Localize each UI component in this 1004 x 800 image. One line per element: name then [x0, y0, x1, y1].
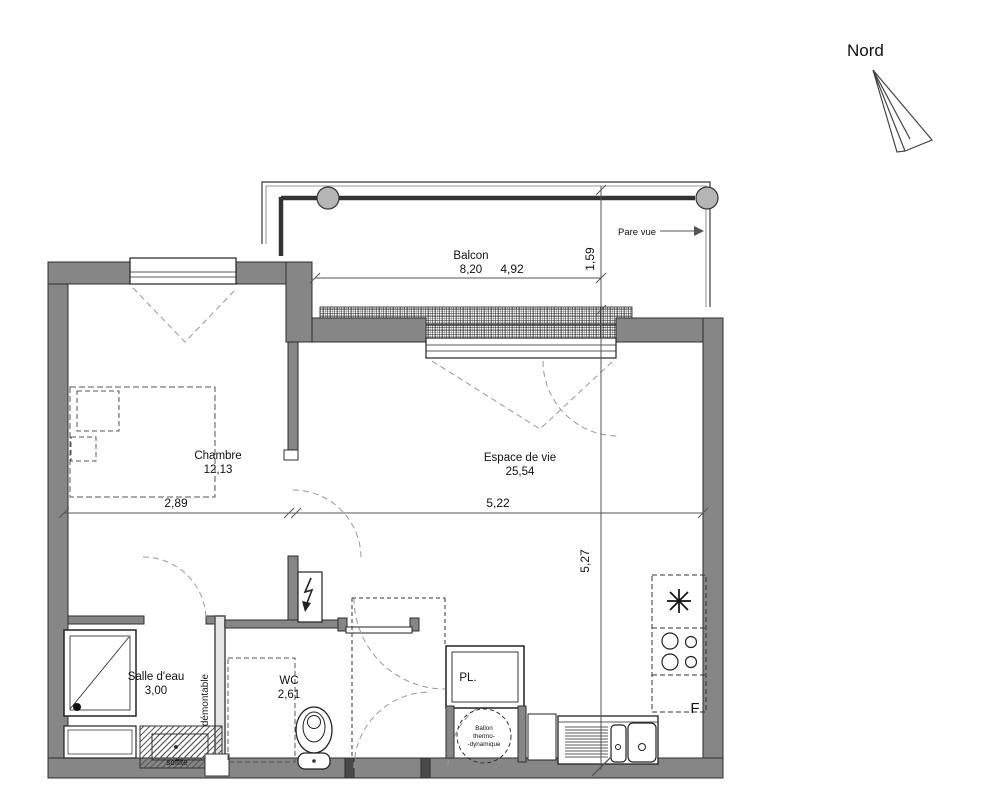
sliding-door-leaf: [346, 627, 412, 633]
wall-chambre-living-lower: [288, 556, 298, 622]
wc-clearance: [228, 658, 295, 762]
entry-door-post: [345, 758, 354, 778]
balcony-label: Balcon: [453, 250, 488, 262]
living-room: Espace de vie 25,54: [484, 452, 556, 478]
wall-wc-top: [225, 620, 340, 628]
wall-salle-deau-top: [68, 616, 144, 624]
dim-living-width: 5,22: [486, 496, 510, 510]
floor-plan: Balcon 8,20 Pare vue: [0, 0, 1004, 800]
balcony-area: 8,20: [460, 264, 482, 276]
living-area: 25,54: [506, 466, 535, 478]
wall-top-living-left: [312, 318, 426, 342]
chambre-area: 12,13: [204, 464, 233, 476]
living-door-swing: [543, 361, 617, 436]
entry-boundary: [352, 598, 445, 758]
cabinet: [528, 714, 556, 760]
wc-label: WC: [279, 675, 298, 687]
dim-chambre-width: 2,89: [164, 496, 188, 510]
balcony-column-icon: [696, 187, 718, 209]
wall-stub: [206, 616, 215, 624]
windows: [130, 258, 617, 436]
wall-cap: [284, 450, 298, 460]
demontable-label: démontable: [200, 673, 211, 726]
pillow-icon: [71, 437, 96, 461]
extractor-asterisk-icon: [667, 589, 691, 613]
cooktop-icon: [662, 633, 697, 670]
chambre-room: Chambre 12,13: [70, 387, 242, 497]
toilet-icon: [296, 707, 332, 753]
storage: PL. Ballon thermo- -dynamique: [446, 646, 556, 763]
ballon-label-1: Ballon: [475, 725, 493, 732]
balcony-column-icon: [317, 187, 339, 209]
sink-basin-icon: [611, 725, 626, 762]
pillow-icon: [77, 391, 119, 431]
pl-label: PL.: [459, 672, 476, 684]
chambre-door-swing: [293, 490, 361, 558]
entry-door-post: [421, 758, 430, 778]
living-window-swing: [432, 361, 613, 429]
wc-area: 2,61: [278, 689, 300, 701]
wall-top-chambre-right: [236, 262, 288, 284]
pare-vue-arrowhead-icon: [694, 226, 704, 236]
north-arrow-icon: [873, 70, 932, 152]
entry-door-swing: [354, 692, 430, 768]
toilet-base-dot: [312, 759, 316, 763]
fridge-marker: F: [690, 700, 699, 717]
chambre-label: Chambre: [194, 450, 241, 462]
wc-room: WC 2,61: [228, 658, 332, 769]
bed-icon: [70, 387, 215, 497]
sink-basin-icon: [628, 723, 656, 762]
salle-deau-label: Salle d'eau: [128, 671, 185, 683]
chambre-window: [130, 258, 236, 284]
soffite-label: soffite: [166, 758, 188, 767]
shower-drain-icon: [73, 703, 81, 711]
living-window: [426, 338, 616, 358]
dim-living-depth: 5,27: [578, 549, 592, 573]
floor-plan-page: Balcon 8,20 Pare vue: [0, 0, 1004, 800]
chambre-window-swing: [133, 288, 237, 342]
soffite-dot: [174, 745, 178, 749]
ballon-label-2: thermo-: [473, 733, 495, 740]
soffite-inner: [152, 734, 208, 760]
dim-balcony-width: 4,92: [500, 262, 524, 276]
salle-deau-door-swing: [143, 557, 206, 620]
north-label: Nord: [847, 41, 884, 60]
salle-deau-area: 3,00: [145, 685, 167, 697]
ballon-closet-wall: [518, 706, 526, 762]
wall-top-chambre-left: [48, 262, 130, 284]
balcony: Balcon 8,20 Pare vue: [262, 182, 718, 341]
north-arrow: Nord: [847, 41, 932, 152]
living-label: Espace de vie: [484, 452, 556, 464]
ballon-label-3: -dynamique: [468, 741, 501, 748]
wall-step: [286, 262, 312, 342]
ballon-closet-wall: [446, 706, 454, 758]
washbasin-icon: [64, 726, 136, 758]
pare-vue-label: Pare vue: [618, 227, 656, 238]
walls: [48, 262, 723, 778]
closet-pl: [446, 646, 524, 708]
kitchen-counter-divider: [652, 628, 706, 675]
duct-shaft: [205, 754, 229, 776]
kitchen: F: [558, 575, 706, 764]
wall-chambre-living: [288, 342, 298, 460]
dim-balcony-depth: 1,59: [583, 247, 597, 271]
entry-door-swing: [354, 598, 445, 689]
